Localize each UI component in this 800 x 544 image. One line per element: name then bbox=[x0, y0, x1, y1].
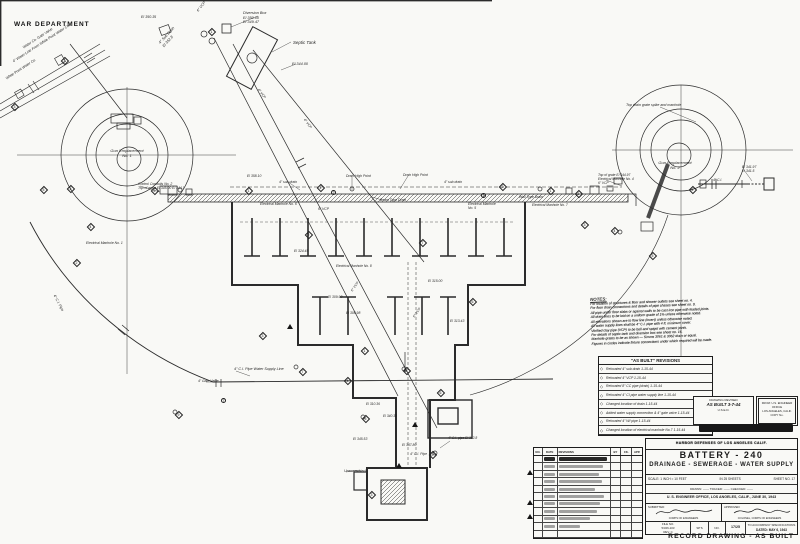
drawn-line: DRAWN: —— TRACED: —— CHECKED: —— bbox=[690, 487, 753, 491]
no-label: NO. bbox=[714, 526, 719, 530]
signature-scribble bbox=[732, 508, 792, 516]
plan-annotation: Drain High Point bbox=[346, 174, 371, 178]
revision-table-row bbox=[534, 523, 642, 530]
scanned-engineering-drawing: { "header": { "department": "WAR DEPARTM… bbox=[0, 0, 800, 544]
redaction-stamp-bar bbox=[699, 424, 793, 432]
stamp-line: U.S.E.D. bbox=[694, 408, 753, 412]
revision-table-row bbox=[534, 516, 642, 523]
rev-col-header: APP. bbox=[632, 448, 642, 455]
title-block-scale-row: SCALE: 1 INCH = 10 FEET IN 25 SHEETS SHE… bbox=[646, 475, 797, 485]
plan-annotation: Electrical Manhole No. 1 bbox=[86, 241, 123, 245]
rev-col-header: REVISIONS bbox=[558, 448, 611, 455]
title-block-org: HARBOR DEFENSES OF LOS ANGELES CALIF. bbox=[646, 439, 797, 450]
approved-cell: APPROVED: COLONEL, CORPS OF ENGINEERS bbox=[722, 504, 797, 521]
signature-scribble bbox=[654, 508, 714, 516]
sheet-fraction: 17/25 bbox=[731, 525, 740, 530]
pipe-callout-diamond: 6 bbox=[151, 187, 158, 194]
plan-annotation: Diversion Box El 350.00 El 349.47 bbox=[243, 11, 266, 25]
plan-annotation: 4" C.I. Pipe bbox=[52, 294, 64, 312]
pipe-callout-diamond: 8 bbox=[429, 451, 436, 458]
office-copy-stamp: FROM: U.S. ENGINEER OFFICE LOS ANGELES, … bbox=[756, 396, 798, 426]
plan-annotation: Wall Type Drain bbox=[519, 195, 543, 199]
pipe-callout-diamond: 3 bbox=[581, 221, 588, 228]
drawn-traced-row: DRAWN: —— TRACED: —— CHECKED: —— bbox=[646, 485, 797, 494]
fixture-callout-circle: 3 bbox=[480, 192, 487, 199]
plan-annotation: 6" VCP bbox=[412, 307, 422, 318]
title-block-subtitle: DRAINAGE - SEWERAGE - WATER SUPPLY bbox=[646, 462, 797, 475]
revision-table-row bbox=[534, 456, 642, 463]
as-built-stamp: DRAWING REVISED AS BUILT 3-7-44 U.S.E.D. bbox=[693, 396, 754, 425]
plan-annotation: El 350.35 bbox=[141, 15, 156, 19]
plan-annotation: Electrical Manhole No. 7 bbox=[532, 204, 568, 208]
as-built-title: "AS BUILT" REVISIONS bbox=[599, 357, 712, 365]
plan-annotation: El 308.98 bbox=[346, 311, 360, 315]
pipe-callout-diamond: 6 bbox=[469, 298, 476, 305]
revision-table-row bbox=[534, 471, 642, 478]
pipe-callout-diamond: 4 bbox=[344, 377, 351, 384]
revision-table-row bbox=[534, 501, 642, 508]
revision-table-row bbox=[534, 463, 642, 470]
rev-col-header: BY bbox=[611, 448, 622, 455]
plan-annotation: Electrical Manhole No. 6 bbox=[260, 202, 297, 206]
record-drawing-caption: RECORD DRAWING - AS BUILT bbox=[600, 533, 794, 540]
rev-col-header: DATE bbox=[543, 448, 558, 455]
pipe-callout-diamond: 1 bbox=[575, 190, 582, 197]
plan-annotation: El 313.43 bbox=[450, 319, 464, 323]
plan-annotation: Unexcavated bbox=[344, 469, 366, 473]
revision-triangle-marker bbox=[527, 470, 533, 475]
survey-triangle-marker bbox=[287, 324, 293, 329]
plan-annotation: Gun Emplacement No. 2 bbox=[646, 161, 704, 171]
as-built-item: ◇Relocated 4" VCP 1-15-44 bbox=[599, 374, 712, 383]
pipe-callout-diamond: 1 bbox=[208, 28, 215, 35]
notes-lines: For location of structures & floor and s… bbox=[590, 296, 763, 346]
plan-annotation: 6" VCP bbox=[318, 207, 329, 211]
plan-annotation: 6" VCP bbox=[303, 118, 313, 129]
pipe-callout-diamond: 2 bbox=[73, 259, 80, 266]
pipe-callout-diamond: 3 bbox=[11, 103, 18, 110]
pipe-callout-diamond: 7 bbox=[419, 239, 426, 246]
pipe-callout-diamond: 5 bbox=[649, 252, 656, 259]
plan-annotation: El 340.32 bbox=[383, 415, 397, 419]
scale-note: SCALE: 1 INCH = 10 FEET bbox=[648, 477, 687, 481]
as-built-item: ◇Changed location of electrical manhole … bbox=[599, 426, 712, 435]
plan-annotation: El 344.00 bbox=[292, 62, 308, 67]
revision-table: NO. DATE REVISIONS BY CK. APP. bbox=[533, 447, 643, 539]
pipe-callout-diamond: 1 bbox=[245, 187, 252, 194]
plan-annotation: 6" VCP bbox=[257, 88, 267, 99]
stamp-line: FROM: U.S. ENGINEER OFFICE bbox=[757, 401, 797, 409]
pipe-callout-diamond: 1 bbox=[361, 347, 368, 354]
pipe-callout-diamond: 7 bbox=[299, 368, 306, 375]
rev-col-header: CK. bbox=[621, 448, 632, 455]
notes-block: NOTES: For location of structures & floo… bbox=[590, 291, 764, 346]
revision-table-row bbox=[534, 493, 642, 500]
pipe-callout-diamond: 2 bbox=[499, 183, 506, 190]
plan-annotation: Top of grate El 344.97 Electrical Manhol… bbox=[598, 174, 656, 186]
as-built-item: ◇Relocated 8" CC pipe (drain) 1-15-44 bbox=[599, 383, 712, 392]
survey-triangle-marker bbox=[412, 422, 418, 427]
plan-annotation: Drain High Point bbox=[403, 173, 428, 177]
sps-label: SP'S bbox=[696, 526, 702, 530]
engineer-office-line: U. S. ENGINEER OFFICE, LOS ANGELES, CALI… bbox=[646, 494, 797, 504]
pipe-callout-diamond: 2 bbox=[61, 57, 68, 64]
plan-annotation: 4" Sub Drain El 352.8 bbox=[158, 26, 179, 48]
rev-col-header: NO. bbox=[534, 448, 543, 455]
plan-annotation: 4" C.I. Pipe bbox=[410, 452, 427, 456]
as-built-item: ◇Relocated 4" sub drain 1-15-44 bbox=[599, 365, 712, 374]
plan-annotation: 6" VCP bbox=[196, 1, 207, 13]
plan-annotation: El 324.45 bbox=[294, 249, 308, 253]
spec-date: DATED: MAY 6, 1943 bbox=[756, 528, 787, 532]
plan-annotation: El 347.80 bbox=[402, 443, 416, 447]
plan-annotation: El 341.97 El 341.5 bbox=[742, 165, 756, 173]
plan-annotation: 6" VCP bbox=[350, 281, 360, 292]
plan-annotation: 4" Gate Valve bbox=[198, 379, 219, 383]
plan-annotation: Electrical Manhole No. 5 bbox=[468, 202, 508, 210]
fixture-callout-circle: 2 bbox=[330, 189, 337, 196]
approved-caption: COLONEL, CORPS OF ENGINEERS bbox=[722, 517, 797, 520]
plan-annotation: 4" C.I. bbox=[713, 178, 722, 182]
pipe-callout-diamond: 2 bbox=[305, 231, 312, 238]
stamp-line: COPY No. bbox=[757, 413, 797, 417]
plan-annotation: El 309.98 bbox=[328, 295, 342, 299]
pipe-callout-diamond: 2 bbox=[689, 186, 696, 193]
revision-triangle-marker bbox=[527, 514, 533, 519]
revision-table-row bbox=[534, 508, 642, 515]
submitted-caption: CORPS OF ENGINEERS bbox=[646, 517, 721, 520]
pipe-callout-diamond: 3 bbox=[259, 332, 266, 339]
plan-annotation: Electrical Manhole No. 8 bbox=[336, 265, 372, 269]
signature-row: SUBMITTED: CORPS OF ENGINEERS APPROVED: … bbox=[646, 504, 797, 522]
revision-table-header: NO. DATE REVISIONS BY CK. APP. bbox=[534, 448, 642, 456]
plan-annotation: Beam Type Drain bbox=[380, 198, 406, 202]
plan-annotation: 4" sub drain bbox=[279, 180, 297, 184]
plan-annotation: 4" sub drain bbox=[444, 180, 462, 184]
sheet-count: IN 25 SHEETS bbox=[720, 477, 741, 481]
revision-table-row bbox=[534, 486, 642, 493]
revision-triangle-marker bbox=[527, 500, 533, 505]
submitted-cell: SUBMITTED: CORPS OF ENGINEERS bbox=[646, 504, 722, 521]
revision-table-rows bbox=[534, 456, 642, 538]
plan-annotation: El 310.36 bbox=[366, 403, 380, 407]
survey-triangle-marker bbox=[396, 463, 402, 468]
pipe-callout-diamond: 5 bbox=[362, 415, 369, 422]
revision-table-row bbox=[534, 478, 642, 485]
plan-annotation: El 315.00 bbox=[428, 279, 442, 283]
pipe-callout-diamond: 6 bbox=[437, 389, 444, 396]
fixture-callout-circle: 7 bbox=[220, 397, 227, 404]
plan-annotation: Top drain grate spike and manhole bbox=[626, 103, 721, 107]
pipe-callout-diamond: 1 bbox=[547, 187, 554, 194]
sheet-number: SHEET NO. 17 bbox=[773, 477, 795, 481]
pipe-callout-diamond: 8 bbox=[403, 367, 410, 374]
title-block-battery: BATTERY - 240 bbox=[646, 450, 797, 462]
plan-annotation: 4" C.I. pipe El 312.8 bbox=[448, 437, 477, 441]
title-block: HARBOR DEFENSES OF LOS ANGELES CALIF. BA… bbox=[645, 438, 798, 535]
pipe-callout-diamond: 5 bbox=[40, 186, 47, 193]
plan-annotation: Gun Emplacement No. 1 bbox=[98, 149, 156, 159]
plan-annotation: White Point Water Co. bbox=[5, 58, 37, 81]
plan-annotation: 4" C.I. Pipe Water Supply Line bbox=[234, 367, 284, 371]
plan-annotation: El 345.53 bbox=[353, 437, 367, 441]
pipe-callout-diamond: 4 bbox=[87, 223, 94, 230]
pipe-callout-diamond: 3 bbox=[67, 185, 74, 192]
pipe-callout-diamond: 3 bbox=[368, 491, 375, 498]
pipe-callout-diamond: 9 bbox=[175, 411, 182, 418]
plan-annotation: Septic Tank bbox=[293, 40, 316, 45]
plan-annotation: Control Conduits No. 2 Top of grate El 3… bbox=[138, 182, 210, 190]
pipe-callout-diamond: 4 bbox=[317, 184, 324, 191]
pipe-callout-diamond: 4 bbox=[611, 227, 618, 234]
plan-annotation: El 358.10 bbox=[247, 174, 261, 178]
